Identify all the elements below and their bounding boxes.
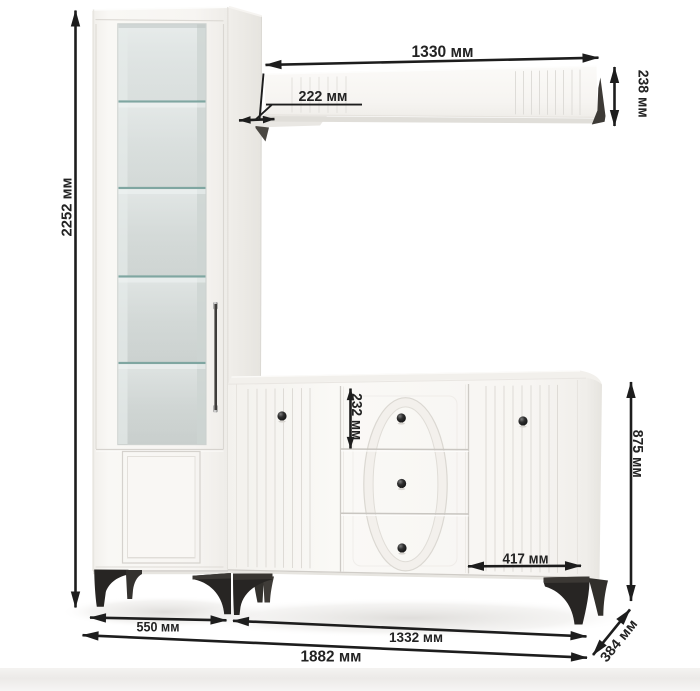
svg-text:550 мм: 550 мм [137, 618, 180, 634]
svg-text:2252 мм: 2252 мм [58, 178, 75, 237]
svg-text:238 мм: 238 мм [634, 70, 651, 118]
svg-text:417 мм: 417 мм [503, 550, 549, 567]
svg-text:875 мм: 875 мм [629, 430, 646, 478]
svg-text:232 мм: 232 мм [348, 393, 365, 440]
svg-text:222 мм: 222 мм [299, 88, 348, 105]
svg-text:1882 мм: 1882 мм [301, 649, 362, 666]
svg-text:1330 мм: 1330 мм [412, 42, 474, 61]
svg-text:1332 мм: 1332 мм [389, 629, 443, 645]
